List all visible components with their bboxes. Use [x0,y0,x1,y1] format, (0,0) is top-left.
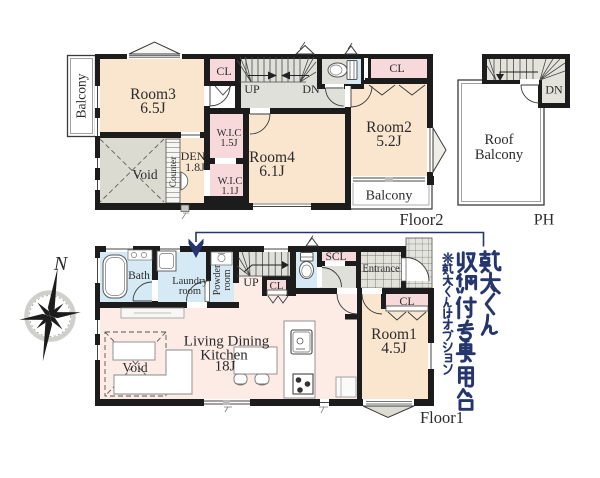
svg-text:UP: UP [243,275,259,289]
svg-text:5.2J: 5.2J [376,133,401,150]
svg-text:PH: PH [534,212,555,229]
svg-text:1.1J: 1.1J [221,186,238,197]
svg-text:UP: UP [244,82,260,96]
svg-text:Entrance: Entrance [362,264,400,275]
svg-text:1.5J: 1.5J [220,138,237,149]
svg-text:Balcony: Balcony [366,189,413,204]
svg-text:Floor1: Floor1 [420,408,464,427]
svg-text:CL: CL [269,280,283,292]
svg-text:Counter: Counter [169,156,179,187]
svg-text:Roof: Roof [485,132,514,148]
svg-text:CL: CL [216,64,231,78]
svg-text:Balcony: Balcony [74,73,89,118]
svg-text:SCL: SCL [325,251,346,263]
svg-text:Bath: Bath [128,270,150,282]
svg-text:Floor2: Floor2 [399,210,443,229]
svg-text:1.8J: 1.8J [185,160,205,174]
svg-text:6.1J: 6.1J [259,163,284,180]
svg-text:18J: 18J [215,359,236,375]
svg-text:4.5J: 4.5J [381,340,406,357]
svg-text:Void: Void [132,167,158,182]
svg-text:DN: DN [545,83,563,97]
svg-text:N: N [53,253,69,275]
svg-text:DN: DN [302,82,320,96]
svg-text:Void: Void [122,360,148,375]
svg-text:room: room [179,286,201,297]
svg-text:Balcony: Balcony [475,147,524,163]
svg-text:6.5J: 6.5J [140,100,165,117]
svg-text:room: room [222,269,233,290]
svg-text:CL: CL [389,61,404,75]
svg-text:CL: CL [399,294,414,308]
